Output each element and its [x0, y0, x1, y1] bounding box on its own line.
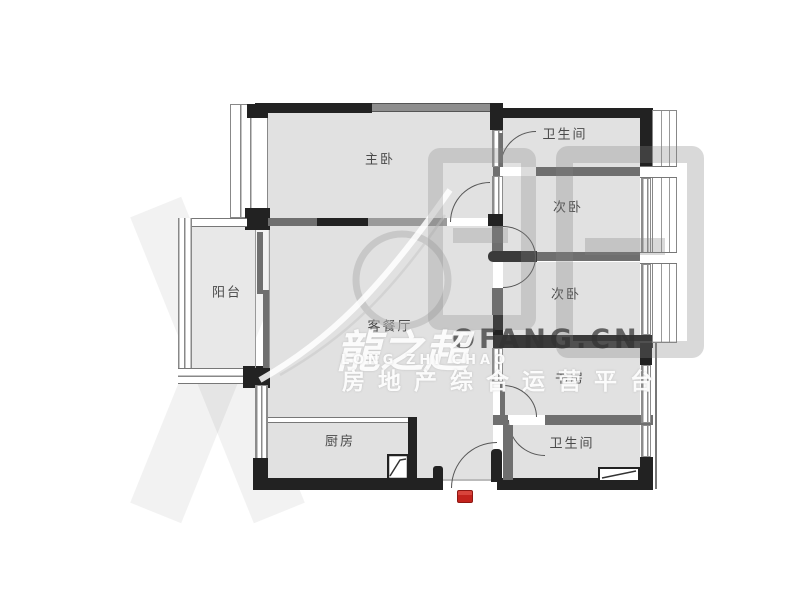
wall-corner-bay-top [247, 104, 268, 118]
study-bathroom-wall-left [493, 415, 508, 425]
watermark-tagline: 房地产综合运营平台 [342, 362, 666, 396]
balcony-left-window [178, 218, 192, 380]
study-bathroom-wall-right [545, 415, 653, 425]
wall-top-master-right [490, 103, 503, 130]
bottom-right-corner-wall [640, 457, 653, 490]
room-label-master-bedroom: 主卧 [365, 149, 395, 168]
window-top-master [372, 103, 490, 112]
bottom-wall-left [253, 478, 435, 490]
watermark-glyph-right-bar [585, 238, 665, 255]
wall-top-bathroom [503, 108, 653, 118]
kitchen-left-window [255, 385, 268, 460]
watermark-site-text: OFANG.CN [452, 324, 641, 355]
bathroom-bottom-left-wall [503, 425, 513, 480]
balcony-top-wall [185, 218, 247, 227]
bathroom-bottom-window-icon [598, 467, 640, 482]
room-label-kitchen: 厨房 [325, 431, 355, 450]
room-label-bathroom-top: 卫生间 [542, 124, 587, 143]
bathroom-bottom-right-window [641, 425, 651, 457]
room-label-bathroom-bottom: 卫生间 [549, 433, 594, 452]
watermark-glyph-left-bar [453, 228, 508, 243]
floor-plan-canvas: 主卧 卫生间 次卧 次卧 书房 卫生间 客餐厅 厨房 阳台 OFANG.CN 龍… [0, 0, 800, 600]
entrance-marker [457, 490, 473, 503]
room-label-balcony: 阳台 [212, 282, 242, 301]
kitchen-fold-door-icon [387, 454, 409, 480]
entrance-left-post [433, 466, 443, 490]
kitchen-top-wall [255, 417, 417, 423]
watermark-glyph-left [428, 148, 536, 330]
wall-top-master-left [255, 103, 372, 113]
